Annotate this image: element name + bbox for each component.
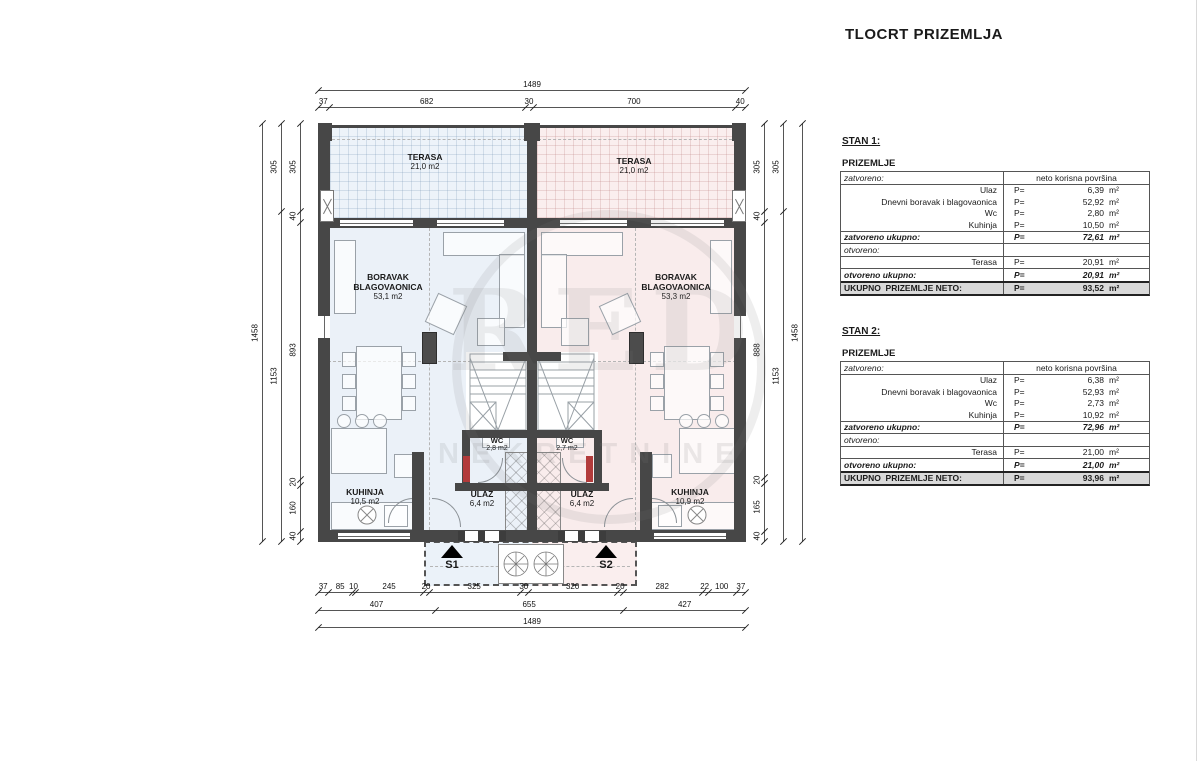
terrace-ladder-symbol (732, 190, 746, 222)
dim-right-detail: 305408882016540 (764, 123, 765, 542)
dim-segment: 165 (764, 483, 765, 530)
wc-wall (594, 430, 602, 491)
flue (629, 332, 644, 364)
page-title: TLOCRT PRIZEMLJA (845, 26, 1003, 43)
room-label-wc-left: WC 2,8 m2 (477, 436, 517, 453)
drawing-sheet: TLOCRT PRIZEMLJA (0, 0, 1200, 761)
sink (686, 504, 708, 526)
door-post (558, 531, 565, 541)
sofa (443, 232, 525, 256)
dim-segment: 1153 (783, 211, 784, 542)
table-header-row: zatvoreno: neto korisna površina (841, 172, 1149, 185)
dim-segment: 160 (300, 485, 301, 531)
door-jamb (586, 456, 593, 482)
window (437, 220, 504, 226)
dim-segment: 100 (708, 592, 736, 593)
chair (710, 374, 724, 389)
room-label-kuhinja-left: KUHINJA 10,5 m2 (325, 487, 405, 507)
chair (342, 396, 356, 411)
stan2-area-table: zatvoreno: neto korisna površina Ulaz P=… (840, 361, 1150, 486)
dim-left-overall: 1458 (262, 123, 263, 542)
wall-post (524, 123, 540, 141)
room-label-wc-right: WC 2,7 m2 (547, 436, 587, 453)
table-header-row: zatvoreno: neto korisna površina (841, 362, 1149, 375)
room-label-terasa-right: TERASA 21,0 m2 (584, 156, 684, 176)
dim-bottom-overall: 1489 (318, 627, 746, 628)
terrace-ladder-symbol (320, 190, 334, 222)
hob-burner (697, 414, 711, 428)
side-window (734, 316, 746, 338)
terrace-left-floor (330, 127, 527, 218)
hob-burner (355, 414, 369, 428)
axis-line (538, 139, 732, 140)
plants (500, 546, 562, 582)
window (651, 220, 724, 226)
dining-table (664, 346, 710, 420)
stair-wall-stub (537, 352, 561, 361)
chair (710, 396, 724, 411)
dim-segment: 700 (533, 107, 734, 108)
entry-door (558, 531, 606, 541)
stair-wall-stub (503, 352, 527, 361)
dim-segment: 305 (783, 123, 784, 211)
table-section-row: otvoreno: (841, 434, 1149, 447)
chair (402, 352, 416, 367)
dim-top-overall: 1489 (318, 90, 746, 91)
chair (402, 374, 416, 389)
dim-segment: 85 (328, 592, 352, 593)
table-row: Terasa P= 21,00 m² (841, 447, 1149, 459)
wall-post (732, 123, 746, 141)
table-row: Kuhinja P= 10,50 m² (841, 219, 1149, 231)
dim-segment: 682 (329, 107, 525, 108)
dim-bottom-mid: 407655427 (318, 610, 746, 611)
room-label-boravak-left: BORAVAK BLAGOVAONICA 53,1 m2 (338, 272, 438, 302)
chair (650, 352, 664, 367)
table-row: Wc P= 2,80 m² (841, 208, 1149, 220)
room-label-terasa-left: TERASA 21,0 m2 (375, 152, 475, 172)
dim-left-detail: 305408932016040 (300, 123, 301, 542)
section-arrow-icon (441, 545, 463, 558)
table-subtotal-row: otvoreno ukupno: P= 20,91 m² (841, 268, 1149, 281)
table-row: Ulaz P= 6,38 m² (841, 375, 1149, 387)
dim-left-mid: 3051153 (281, 123, 282, 542)
fridge (394, 454, 414, 478)
section-marker-s2: S2 (594, 545, 618, 571)
table-total-row: UKUPNO PRIZEMLJE NETO: P= 93,96 m² (841, 471, 1149, 485)
door-jamb (463, 456, 470, 482)
dim-segment: 245 (355, 592, 423, 593)
dim-segment: 1153 (281, 211, 282, 542)
wall-post (318, 123, 332, 141)
section-marker-s1: S1 (440, 545, 464, 571)
section-arrow-icon (595, 545, 617, 558)
axis-line (332, 139, 526, 140)
chair (650, 374, 664, 389)
door-post (599, 531, 606, 541)
wall (527, 123, 537, 542)
stan2-heading: STAN 2: (842, 326, 880, 337)
dim-segment: 305 (281, 123, 282, 211)
hob-burner (373, 414, 387, 428)
dim-segment: 325 (429, 592, 520, 593)
table-total-row: UKUPNO PRIZEMLJE NETO: P= 93,52 m² (841, 281, 1149, 295)
stan1-floor-heading: PRIZEMLJE (842, 158, 895, 169)
chair (650, 396, 664, 411)
dim-right-mid: 3051153 (783, 123, 784, 542)
table-row: Dnevni boravak i blagovaonica P= 52,92 m… (841, 196, 1149, 208)
flue (422, 332, 437, 364)
hob-burner (715, 414, 729, 428)
coffee-table (561, 318, 589, 346)
dim-right-overall: 1458 (802, 123, 803, 542)
dim-segment: 305 (300, 123, 301, 211)
dim-segment: 282 (623, 592, 702, 593)
table-row: Kuhinja P= 10,92 m² (841, 409, 1149, 421)
door-post (578, 531, 585, 541)
dim-segment: 1489 (318, 627, 746, 628)
dim-segment: 407 (318, 610, 435, 611)
entry-door (458, 531, 506, 541)
door-post (458, 531, 465, 541)
sofa (541, 254, 567, 328)
room-label-kuhinja-right: KUHINJA 10,9 m2 (650, 487, 730, 507)
window (338, 533, 410, 539)
room-label-ulaz-left: ULAZ 6,4 m2 (445, 489, 519, 509)
coffee-table (477, 318, 505, 346)
hob-burner (337, 414, 351, 428)
room-label-boravak-right: BORAVAK BLAGOVAONICA 53,3 m2 (626, 272, 726, 302)
chair (342, 374, 356, 389)
fridge (652, 454, 672, 478)
dim-segment: 655 (435, 610, 623, 611)
partition-wall (412, 452, 424, 530)
window (654, 533, 726, 539)
table-row: Terasa P= 20,91 m² (841, 257, 1149, 269)
table-subtotal-row: zatvoreno ukupno: P= 72,96 m² (841, 421, 1149, 435)
room-label-ulaz-right: ULAZ 6,4 m2 (545, 489, 619, 509)
kitchen-island (679, 428, 735, 474)
dim-segment: 427 (623, 610, 746, 611)
chair (402, 396, 416, 411)
kitchen-island (331, 428, 387, 474)
dim-top-detail: 376823070040 (318, 107, 746, 108)
dim-segment: 888 (764, 222, 765, 477)
sink (356, 504, 378, 526)
door-post (499, 531, 506, 541)
stan1-area-table: zatvoreno: neto korisna površina Ulaz P=… (840, 171, 1150, 296)
sheet-border (1196, 0, 1197, 761)
table-subtotal-row: otvoreno ukupno: P= 21,00 m² (841, 458, 1149, 471)
chair (342, 352, 356, 367)
dim-segment: 1458 (802, 123, 803, 542)
window (560, 220, 627, 226)
dim-segment: 1489 (318, 90, 746, 91)
table-row: Wc P= 2,73 m² (841, 398, 1149, 410)
dim-segment: 893 (300, 222, 301, 479)
dim-bottom-detail: 3785102452032530320202822210037 (318, 592, 746, 593)
table-subtotal-row: zatvoreno ukupno: P= 72,61 m² (841, 231, 1149, 245)
stan2-floor-heading: PRIZEMLJE (842, 348, 895, 359)
chair (710, 352, 724, 367)
table-row: Dnevni boravak i blagovaonica P= 52,93 m… (841, 386, 1149, 398)
dim-segment: 305 (764, 123, 765, 211)
dim-segment: 1458 (262, 123, 263, 542)
door-post (478, 531, 485, 541)
table-section-row: otvoreno: (841, 244, 1149, 257)
sofa (499, 254, 525, 328)
sofa (541, 232, 623, 256)
dim-segment: 320 (528, 592, 617, 593)
table-row: Ulaz P= 6,39 m² (841, 185, 1149, 197)
side-window (318, 316, 330, 338)
dining-table (356, 346, 402, 420)
window (340, 220, 413, 226)
stan1-heading: STAN 1: (842, 136, 880, 147)
hob-burner (679, 414, 693, 428)
